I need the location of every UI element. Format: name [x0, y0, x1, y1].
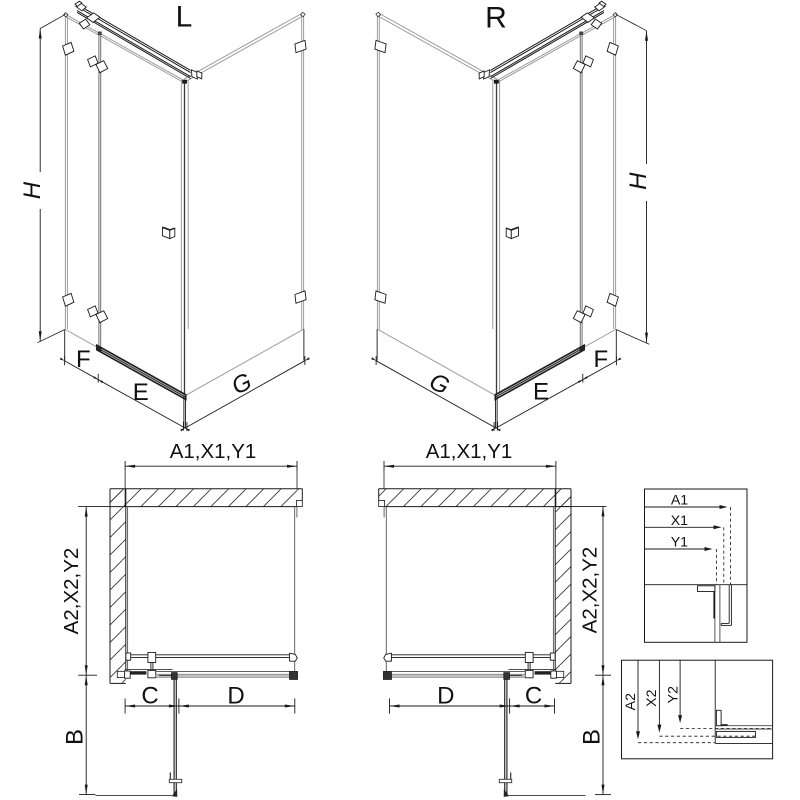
svg-text:E: E — [133, 379, 149, 406]
svg-text:Y2: Y2 — [665, 686, 681, 703]
svg-text:A1: A1 — [671, 493, 688, 509]
svg-text:A1,X1,Y1: A1,X1,Y1 — [426, 440, 513, 463]
svg-text:F: F — [76, 346, 91, 373]
svg-text:B: B — [61, 729, 88, 745]
svg-text:B: B — [578, 729, 605, 745]
svg-text:C: C — [525, 683, 542, 710]
svg-text:E: E — [533, 379, 549, 406]
svg-text:D: D — [227, 683, 244, 710]
svg-text:A1,X1,Y1: A1,X1,Y1 — [170, 440, 257, 463]
svg-text:H: H — [19, 181, 46, 199]
svg-text:X2: X2 — [644, 689, 660, 706]
svg-text:C: C — [141, 683, 158, 710]
svg-text:X1: X1 — [671, 513, 688, 529]
svg-text:Y1: Y1 — [671, 535, 688, 551]
svg-text:A2: A2 — [623, 693, 639, 710]
svg-text:A2,X2,Y2: A2,X2,Y2 — [579, 547, 602, 634]
svg-text:D: D — [437, 683, 454, 710]
svg-text:F: F — [593, 346, 608, 373]
svg-text:R: R — [485, 1, 507, 34]
svg-text:L: L — [176, 0, 193, 33]
svg-text:A2,X2,Y2: A2,X2,Y2 — [60, 548, 83, 635]
svg-text:H: H — [625, 172, 652, 190]
